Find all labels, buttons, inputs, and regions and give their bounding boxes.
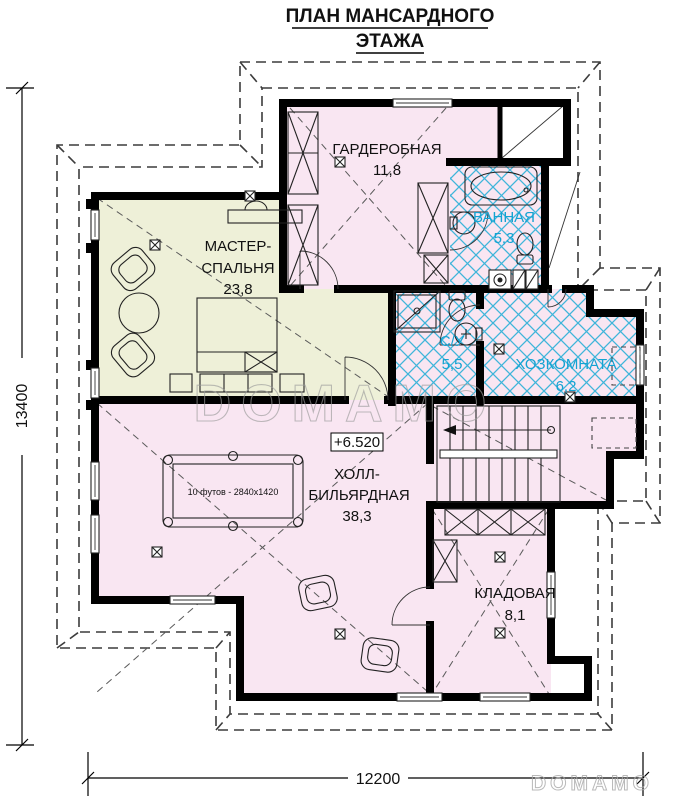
room-label-hall-2: БИЛЬЯРДНАЯ xyxy=(308,487,409,504)
watermark-center: DOMAMO xyxy=(194,375,497,433)
room-area-utility: 6,2 xyxy=(556,378,577,395)
room-area-bathroom: 5,3 xyxy=(494,230,515,247)
floor-plan-drawing: ПЛАН МАНСАРДНОГО ЭТАЖА xyxy=(0,0,674,800)
dimension-left-value: 13400 xyxy=(14,384,31,429)
room-label-wardrobe: ГАРДЕРОБНАЯ xyxy=(332,141,441,158)
elevation-value: +6.520 xyxy=(334,434,380,451)
window xyxy=(393,99,452,107)
room-label-wc: С/У xyxy=(440,333,465,350)
room-label-storage: КЛАДОВАЯ xyxy=(474,585,555,602)
title-line2: ЭТАЖА xyxy=(356,31,425,52)
billiard-table-label: 10 футов - 2840x1420 xyxy=(188,487,279,497)
watermark-corner: DOMAMO xyxy=(531,772,653,795)
dimension-bottom-value: 12200 xyxy=(356,771,401,788)
floor-plan-page: ПЛАН МАНСАРДНОГО ЭТАЖА xyxy=(0,0,674,800)
room-area-bedroom: 23,8 xyxy=(223,281,252,298)
window xyxy=(91,210,99,240)
window xyxy=(397,693,442,701)
window xyxy=(480,693,530,701)
window xyxy=(91,368,99,398)
window xyxy=(170,596,215,604)
window xyxy=(91,462,99,500)
room-area-storage: 8,1 xyxy=(505,607,526,624)
window xyxy=(91,515,99,553)
room-area-wardrobe: 11,8 xyxy=(373,162,401,179)
page-title: ПЛАН МАНСАРДНОГО ЭТАЖА xyxy=(286,6,495,53)
elevation-mark: +6.520 xyxy=(331,433,383,451)
roof-void xyxy=(500,103,567,162)
room-label-utility: ХОЗКОМНАТА xyxy=(515,356,616,373)
room-label-bedroom-1: МАСТЕР- xyxy=(205,238,272,255)
dimension-left: 13400 xyxy=(6,82,34,751)
room-area-hall: 38,3 xyxy=(342,508,371,525)
room-area-wc: 5,5 xyxy=(442,356,463,373)
title-line1: ПЛАН МАНСАРДНОГО xyxy=(286,6,495,27)
room-label-bathroom: ВАННАЯ xyxy=(473,209,535,226)
washing-machine xyxy=(489,270,538,289)
room-label-hall-1: ХОЛЛ- xyxy=(334,466,380,483)
room-label-bedroom-2: СПАЛЬНЯ xyxy=(201,260,274,277)
